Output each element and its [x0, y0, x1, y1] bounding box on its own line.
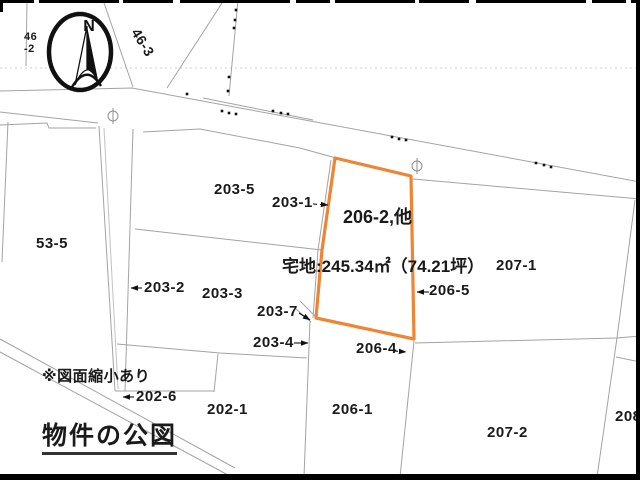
- parcel-label-203-4: 203-4: [253, 335, 294, 351]
- parcel-label-46-2: 46 -2: [24, 32, 37, 55]
- parcel-label-203-7: 203-7: [257, 304, 298, 320]
- cadastral-map: N 46 -2 46-3 203-5 203-1 53-5 203-2 203-…: [0, 0, 640, 480]
- land-area-label: 宅地:245.34㎡（74.21坪）: [282, 258, 484, 276]
- parcel-label-46-3: 46-3: [129, 26, 157, 59]
- parcel-label-208: 208: [615, 409, 640, 425]
- parcel-label-203-3: 203-3: [202, 286, 243, 302]
- parcel-label-206-4: 206-4: [356, 341, 397, 357]
- parcel-label-53-5: 53-5: [36, 236, 68, 252]
- page-title: 物件の公図: [42, 423, 177, 455]
- parcel-label-207-2: 207-2: [487, 425, 528, 441]
- parcel-label-202-1: 202-1: [207, 402, 248, 418]
- parcel-label-206-5: 206-5: [429, 283, 470, 299]
- map-note: ※図面縮小あり: [42, 369, 150, 385]
- subject-parcel-label: 206-2,他: [343, 208, 412, 227]
- map-labels: 46 -2 46-3 203-5 203-1 53-5 203-2 203-3 …: [0, 0, 640, 480]
- parcel-label-203-1: 203-1: [272, 195, 313, 211]
- parcel-label-202-6: 202-6: [136, 389, 177, 405]
- parcel-label-203-5: 203-5: [214, 182, 255, 198]
- parcel-label-203-2: 203-2: [144, 280, 185, 296]
- parcel-label-206-1: 206-1: [332, 402, 373, 418]
- parcel-label-207-1: 207-1: [496, 258, 537, 274]
